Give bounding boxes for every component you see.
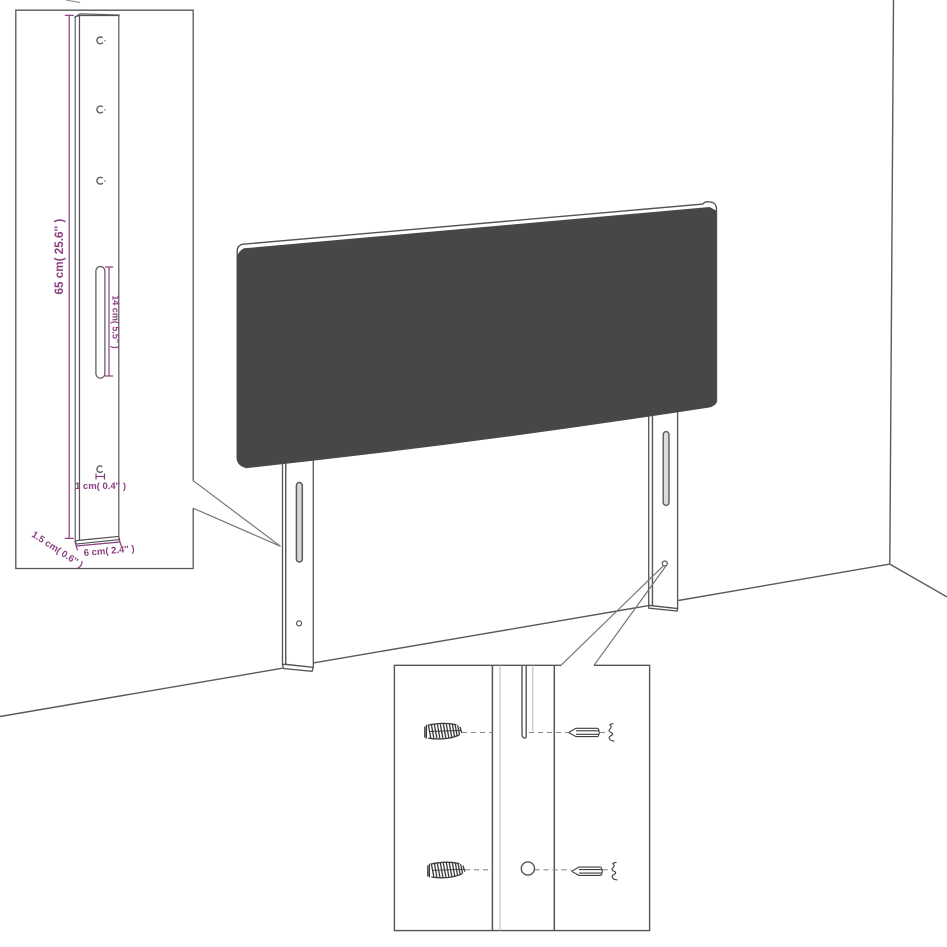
svg-text:6 cm( 2.4'' ): 6 cm( 2.4'' ) [83,544,135,559]
svg-text:1 cm( 0.4'' ): 1 cm( 0.4'' ) [75,481,126,492]
svg-text:14 cm( 5.5'' ): 14 cm( 5.5'' ) [111,295,121,348]
svg-text:65 cm( 25.6'' ): 65 cm( 25.6'' ) [53,219,66,295]
